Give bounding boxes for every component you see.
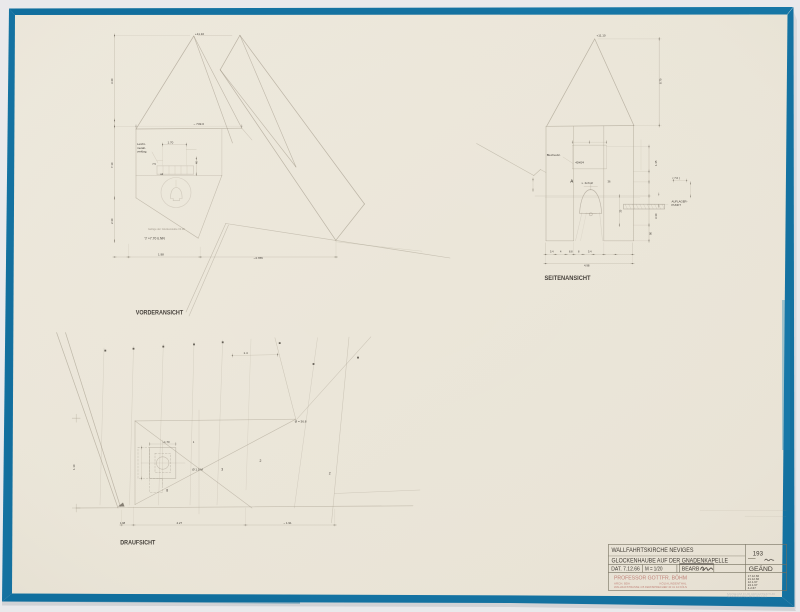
svg-text:~ 749.0: ~ 749.0 [194, 122, 205, 126]
svg-text:KÖLN-LINDENTHAL: KÖLN-LINDENTHAL [660, 581, 687, 585]
svg-text:7.10: 7.10 [110, 162, 114, 168]
svg-text:PROFESSOR GOTTFR. BÖHM: PROFESSOR GOTTFR. BÖHM [614, 574, 687, 581]
svg-text:3: 3 [221, 467, 223, 471]
svg-text:PUNKT: PUNKT [672, 203, 682, 207]
svg-text:WALLRAFSTRASSE 4 B FERNSPRECH: WALLRAFSTRASSE 4 B FERNSPRECHER 40 41 44… [614, 585, 687, 589]
svg-text:SAMMLUNG BOHM 193: SAMMLUNG BOHM 193 [727, 595, 768, 599]
svg-text:BEARB: BEARB [682, 566, 700, 572]
svg-text:( 7.0 ): ( 7.0 ) [673, 176, 680, 180]
svg-text:A: A [570, 178, 573, 183]
svg-text:▽ +7.70 ü.NN: ▽ +7.70 ü.NN [145, 236, 166, 240]
svg-text:Gefüge der Glockenstube ±0.00: Gefüge der Glockenstube ±0.00 [148, 227, 185, 231]
svg-text:VORDERANSICHT: VORDERANSICHT [136, 309, 184, 316]
svg-text:ARCH. BDA: ARCH. BDA [614, 581, 630, 585]
svg-text:1.70: 1.70 [168, 141, 174, 145]
svg-text:7.5: 7.5 [152, 162, 156, 166]
svg-text:8.70: 8.70 [659, 78, 663, 84]
svg-text:40/40/4: 40/40/4 [575, 161, 584, 165]
svg-text:2: 2 [260, 459, 262, 463]
svg-text:3.40: 3.40 [110, 78, 114, 84]
svg-text:2: 2 [329, 472, 331, 476]
svg-text:M = 1/20: M = 1/20 [645, 566, 663, 572]
svg-text:8: 8 [166, 489, 168, 493]
svg-text:~1.70: ~1.70 [163, 440, 171, 444]
svg-text:8.8: 8.8 [569, 251, 573, 254]
svg-text:WALLFAHRTSKIRCHE NEVIGES: WALLFAHRTSKIRCHE NEVIGES [612, 547, 694, 554]
svg-text:GEÄND: GEÄND [749, 565, 773, 573]
svg-text:verklag.: verklag. [137, 150, 147, 154]
svg-text:+11.10: +11.10 [195, 32, 204, 36]
svg-text:SEITENANSICHT: SEITENANSICHT [545, 275, 591, 282]
svg-text:~4.786: ~4.786 [254, 256, 264, 260]
svg-text:s. Schnitt: s. Schnitt [582, 181, 594, 185]
svg-text:4.27: 4.27 [177, 521, 183, 525]
svg-text:Blechverkl.: Blechverkl. [547, 153, 561, 157]
svg-text:GLOCKENHAUBE AUF DER GNADENKAP: GLOCKENHAUBE AUF DER GNADENKAPELLE [612, 558, 729, 565]
svg-text:4.2.67: 4.2.67 [748, 586, 756, 590]
svg-text:193: 193 [753, 550, 764, 557]
svg-text:1.98: 1.98 [120, 521, 126, 525]
svg-text:1.98: 1.98 [158, 252, 164, 256]
svg-text:+11.10: +11.10 [597, 34, 606, 38]
svg-text:DRAUFSICHT: DRAUFSICHT [120, 540, 155, 546]
svg-text:3.30: 3.30 [654, 213, 658, 219]
svg-text:Ø 1.0 M: Ø 1.0 M [192, 467, 203, 471]
svg-text:DAT. 7.12.66: DAT. 7.12.66 [611, 566, 640, 572]
svg-text:4.98: 4.98 [584, 264, 590, 268]
svg-text:1.35: 1.35 [654, 160, 658, 166]
svg-text:90: 90 [648, 231, 652, 235]
svg-text:5.4: 5.4 [588, 251, 592, 254]
svg-text:2.30: 2.30 [110, 218, 114, 224]
svg-text:1.10: 1.10 [72, 464, 76, 470]
svg-text:Ø = 36.8: Ø = 36.8 [295, 419, 307, 423]
svg-text:~ 1.91: ~ 1.91 [284, 521, 293, 525]
svg-text:5.4: 5.4 [550, 251, 554, 254]
svg-text:1.4: 1.4 [244, 351, 249, 355]
